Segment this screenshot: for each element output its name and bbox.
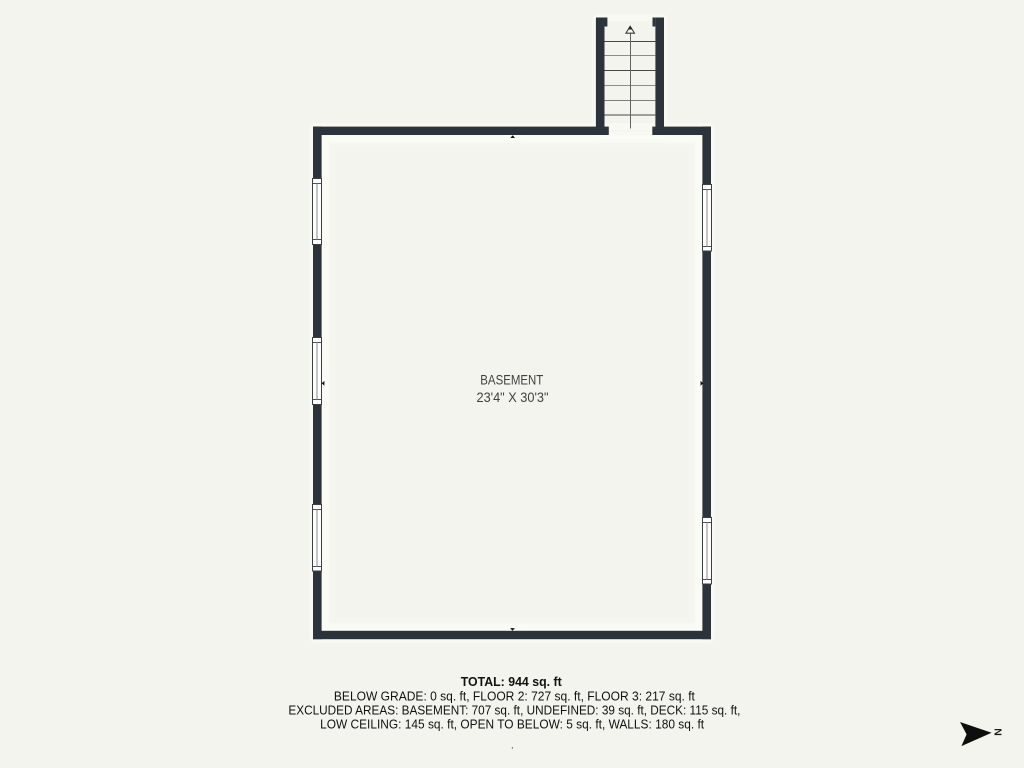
svg-text:BASEMENT: BASEMENT — [480, 372, 543, 388]
svg-text:TOTAL: 944 sq. ft: TOTAL: 944 sq. ft — [461, 674, 563, 689]
svg-text:LOW CEILING: 145 sq. ft, OPEN: LOW CEILING: 145 sq. ft, OPEN TO BELOW: … — [320, 716, 704, 731]
svg-text:BELOW GRADE: 0 sq. ft, FLOOR 2: BELOW GRADE: 0 sq. ft, FLOOR 2: 727 sq. … — [334, 689, 695, 704]
svg-text:23'4" X 30'3": 23'4" X 30'3" — [477, 389, 549, 405]
svg-text:.: . — [511, 738, 514, 752]
svg-text:N: N — [991, 728, 1003, 736]
svg-text:EXCLUDED AREAS: BASEMENT: 707: EXCLUDED AREAS: BASEMENT: 707 sq. ft, UN… — [288, 703, 740, 718]
